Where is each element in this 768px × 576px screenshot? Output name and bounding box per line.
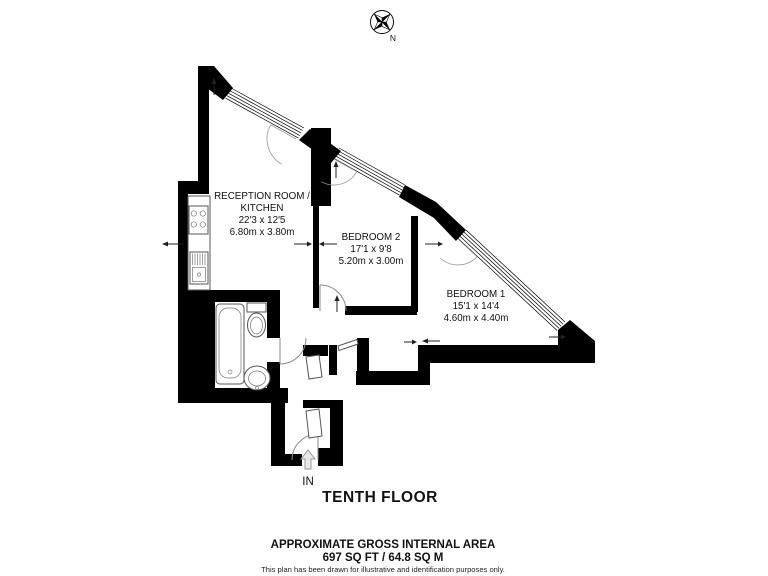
bedroom1-size-imperial: 15'1 x 14'4 xyxy=(453,301,500,312)
entrance-in-label: IN xyxy=(302,476,314,488)
reception-room-size-metric: 6.80m x 3.80m xyxy=(230,227,295,238)
floor-plan-drawing: N xyxy=(0,0,768,576)
area-heading: APPROXIMATE GROSS INTERNAL AREA xyxy=(271,539,496,551)
cupboard-door-lower-icon xyxy=(306,409,322,438)
toilet-icon xyxy=(247,303,266,337)
area-value: 697 SQ FT / 64.8 SQ M xyxy=(323,552,444,564)
floor-title: TENTH FLOOR xyxy=(322,489,438,506)
bedroom2-name: BEDROOM 2 xyxy=(342,232,401,243)
cupboard-door-upper-icon xyxy=(306,355,322,379)
bedroom2-size-metric: 5.20m x 3.00m xyxy=(339,256,404,267)
reception-room-size-imperial: 22'3 x 12'5 xyxy=(239,215,286,226)
entrance-arrow-icon xyxy=(301,450,315,469)
floorplan-page: N xyxy=(0,0,768,576)
reception-room-name-line1: RECEPTION ROOM / xyxy=(214,191,310,202)
basin-icon xyxy=(244,366,270,390)
bathtub-icon xyxy=(216,304,244,384)
bedroom2-size-imperial: 17'1 x 9'8 xyxy=(350,244,392,255)
cupboard-door-top-icon xyxy=(338,340,358,351)
hob-icon xyxy=(189,206,208,234)
compass-north-label: N xyxy=(390,33,396,43)
disclaimer-text: This plan has been drawn for illustrativ… xyxy=(261,565,505,574)
bedroom1-size-metric: 4.60m x 4.40m xyxy=(444,313,509,324)
sink-icon xyxy=(190,252,208,284)
bedroom1-name: BEDROOM 1 xyxy=(447,289,506,300)
compass-icon: N xyxy=(371,11,397,44)
kitchen-fixtures xyxy=(188,196,210,290)
reception-room-name-line2: KITCHEN xyxy=(240,203,283,214)
bathroom-fixtures xyxy=(216,303,270,390)
